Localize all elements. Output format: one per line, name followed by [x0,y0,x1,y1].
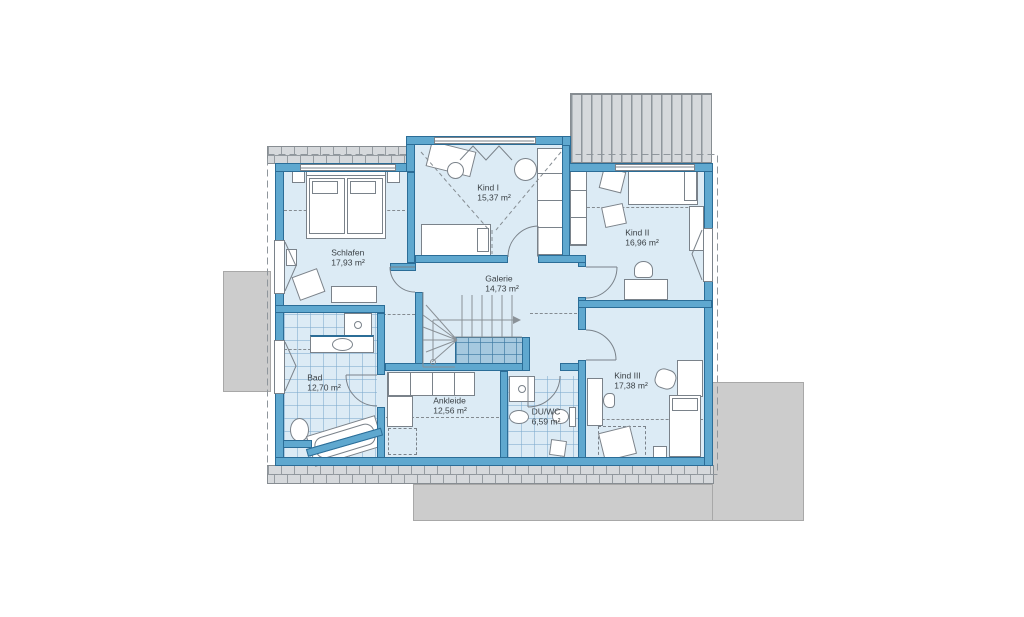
pillow [672,398,698,411]
wall-exterior-left [275,163,284,466]
room-area: 14,73 m² [485,284,519,294]
room-area: 6,59 m² [532,417,561,427]
wardrobe [570,168,587,246]
room-area: 17,38 m² [614,381,648,391]
room-area: 12,70 m² [307,383,341,393]
room-label-galerie: Galerie 14,73 m² [485,275,519,294]
headroom-line [284,349,311,350]
room-area: 15,37 m² [477,193,511,203]
toilet-tank [569,407,576,427]
wall-kind3-left-lower [578,360,586,458]
wall-ankleide-duwc [500,371,508,458]
bottom-center-roof-area [413,484,713,521]
stool [549,439,567,457]
room-label-bad: Bad 12,70 m² [307,374,341,393]
window-schlafen-top [300,164,396,171]
armchair [514,158,537,181]
wall-stair-void-stub [522,337,530,371]
wall-ankleide-top [385,363,530,371]
headroom-line [530,313,577,314]
desk [624,279,668,300]
floor-plan: Schlafen 17,93 m² Kind I 15,37 m² Kind I… [0,0,1024,617]
roof-band-bottom [267,465,714,484]
wall-kind1-kind2 [562,145,570,257]
pillow [312,181,338,194]
room-area: 12,56 m² [433,406,467,416]
left-terrace-area [223,271,271,392]
closet-row [387,372,475,396]
pillow [684,171,697,201]
room-label-ankleide: Ankleide 12,56 m² [433,397,467,416]
washbasin [509,410,529,424]
wall-bad-ankleide-upper [377,313,385,375]
room-label-schlafen: Schlafen 17,93 m² [331,249,365,268]
window-left-upper [274,240,285,294]
shower-drain [518,385,526,393]
wall-schlafen-door-stub [390,263,416,271]
window-right [703,228,713,282]
bottom-right-roof-area [712,382,804,521]
room-label-du-wc: DU/WC 6,59 m² [532,408,561,427]
desk-chair [447,162,464,179]
room-area: 17,93 m² [331,258,365,268]
room-label-kind-3: Kind III 17,38 m² [614,372,648,391]
window-dormer [434,137,536,144]
rug [601,203,627,228]
desk-chair [603,393,615,408]
roof-band-top-left [267,146,415,164]
sideboard [689,206,704,251]
wall-schlafen-galerie [407,172,415,263]
wall-exterior-bottom [275,457,713,466]
room-label-kind-2: Kind II 16,96 m² [625,229,659,248]
wall-kind1-bottom [415,255,508,263]
wall-kind1-bottom-connector [538,255,586,263]
closet [387,396,413,427]
window-kind2-top [615,164,695,171]
washbasin [332,338,353,351]
desk-chair [634,261,653,278]
side-table [286,249,297,266]
wall-stair-left [415,292,423,371]
roof-surface-top-right [570,93,712,163]
wall-schlafen-bad [275,305,385,313]
wall-exterior-right [704,163,713,466]
pillow [350,181,376,194]
room-label-kind-1: Kind I 15,37 m² [477,184,511,203]
desk [587,378,603,426]
window-left-lower [274,340,285,394]
wall-bad-inner [283,440,312,448]
dresser [331,286,377,303]
room-area: 16,96 m² [625,238,659,248]
shower-drain [354,321,362,329]
wardrobe [537,148,563,256]
wardrobe [677,360,703,397]
wall-kind2-kind3 [578,300,712,308]
closet-reserve-area [388,428,417,455]
pillow [477,228,489,252]
